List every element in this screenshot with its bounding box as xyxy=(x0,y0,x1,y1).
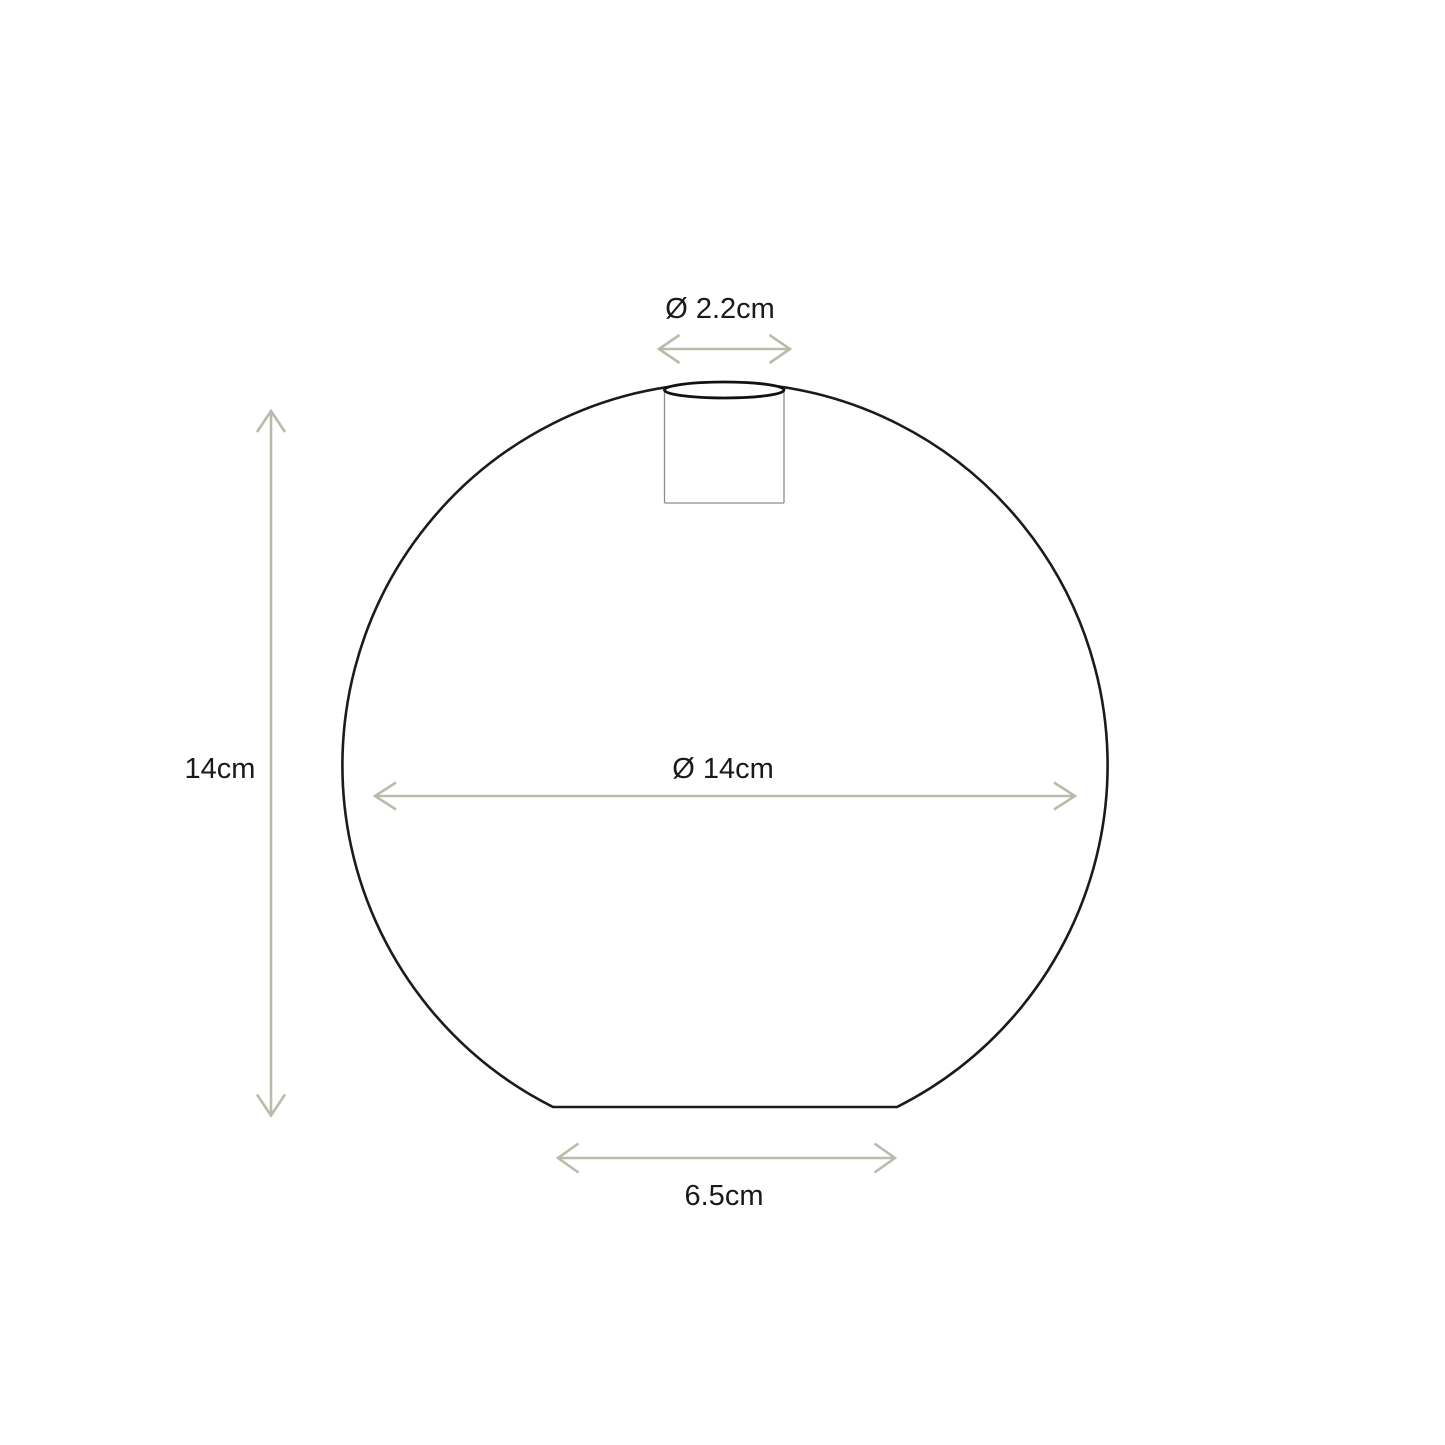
svg-text:Ø 2.2cm: Ø 2.2cm xyxy=(665,293,775,325)
svg-text:6.5cm: 6.5cm xyxy=(685,1180,764,1212)
svg-text:Ø 14cm: Ø 14cm xyxy=(672,753,774,785)
svg-text:14cm: 14cm xyxy=(185,753,256,785)
